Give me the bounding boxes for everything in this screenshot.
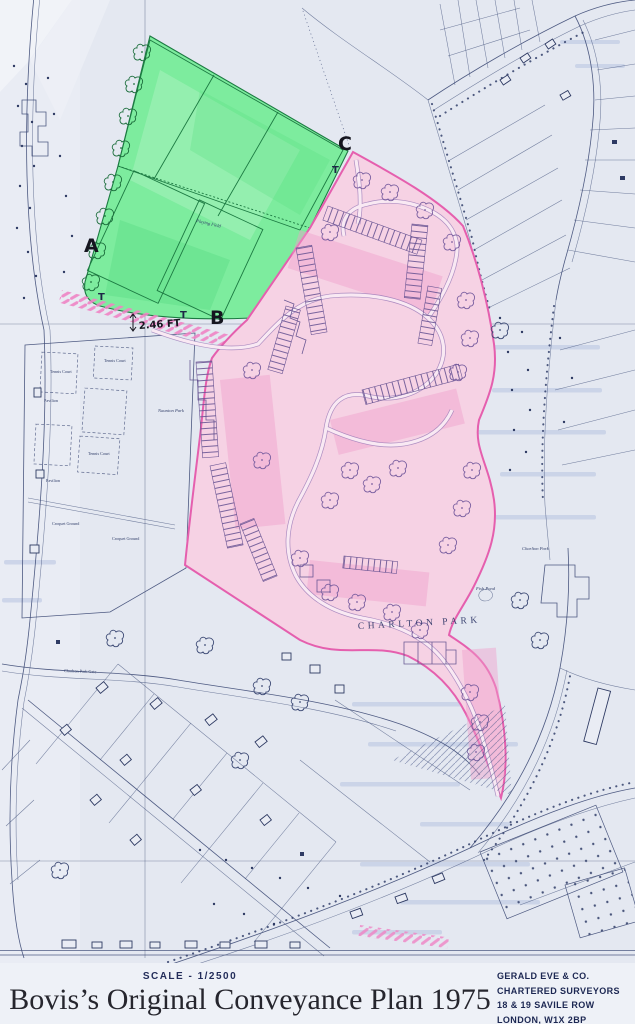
- surveyor-name: GERALD EVE & CO.: [497, 969, 635, 984]
- croquet-ground-label: Croquet Ground: [112, 536, 140, 541]
- fish-pond-label: Fish Pond: [475, 586, 496, 591]
- marker-a: A: [84, 235, 99, 257]
- surveyor-block: GERALD EVE & CO. CHARTERED SURVEYORS 18 …: [497, 969, 635, 1024]
- marker-b: B: [210, 307, 224, 329]
- map-canvas: Tennis Court Tennis Court Tennis Court C…: [0, 0, 635, 963]
- plan-title: Bovis’s Original Conveyance Plan 1975: [0, 983, 500, 1017]
- croquet-ground-label: Croquet Ground: [52, 521, 80, 526]
- t-mark: T: [332, 165, 339, 176]
- tennis-court-label: Tennis Court: [104, 358, 127, 363]
- pavilion-label: Pavilion: [46, 478, 61, 483]
- surveyor-role: CHARTERED SURVEYORS: [497, 984, 635, 999]
- pavilion-label: Pavilion: [44, 398, 59, 403]
- park-name-label: Naunton Park: [157, 408, 185, 413]
- school-label: Charlton Park: [522, 546, 550, 551]
- title-strip: SCALE - 1/2500 Bovis’s Original Conveyan…: [0, 963, 635, 1024]
- tennis-court-label: Tennis Court: [50, 369, 73, 374]
- scale-label: SCALE - 1/2500: [0, 971, 380, 982]
- tennis-court-label: Tennis Court: [88, 451, 111, 456]
- t-mark: T: [180, 310, 187, 321]
- t-mark: T: [98, 292, 105, 303]
- surveyor-address-2: LONDON, W1X 2BP: [497, 1013, 635, 1024]
- conveyance-plan-scan: Tennis Court Tennis Court Tennis Court C…: [0, 0, 635, 1024]
- surveyor-address-1: 18 & 19 SAVILE ROW: [497, 998, 635, 1013]
- marker-c: C: [338, 133, 352, 155]
